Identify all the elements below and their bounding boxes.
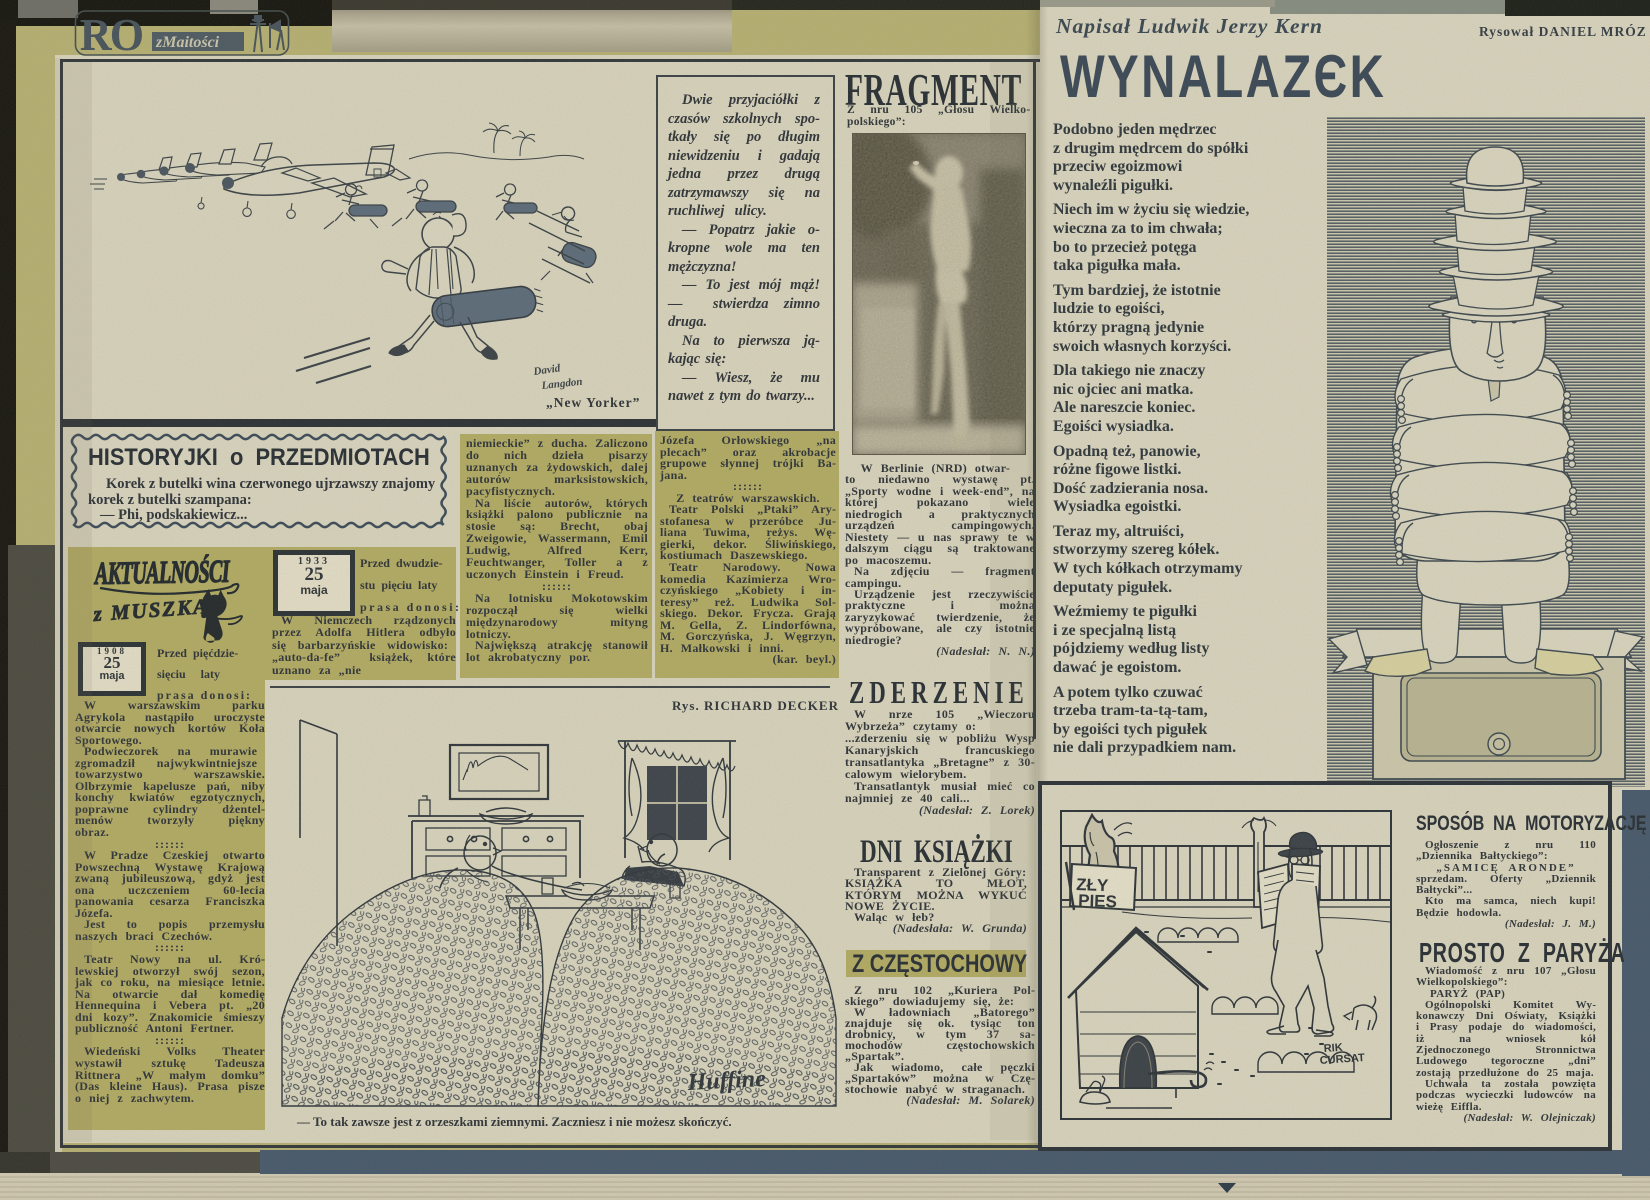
svg-text:z MUSZKĄ: z MUSZKĄ — [92, 594, 210, 626]
svg-text:zMaitości: zMaitości — [155, 34, 220, 51]
svg-text:AKTUALNOŚCI: AKTUALNOŚCI — [93, 553, 231, 591]
svg-text:RO: RO — [80, 9, 142, 58]
svg-text:Langdon: Langdon — [540, 376, 583, 392]
svg-text:PIES: PIES — [1078, 891, 1117, 911]
svg-text:Huffine: Huffine — [686, 1066, 767, 1096]
svg-text:CURSAT: CURSAT — [1319, 1052, 1365, 1067]
svg-text:David: David — [532, 362, 562, 378]
